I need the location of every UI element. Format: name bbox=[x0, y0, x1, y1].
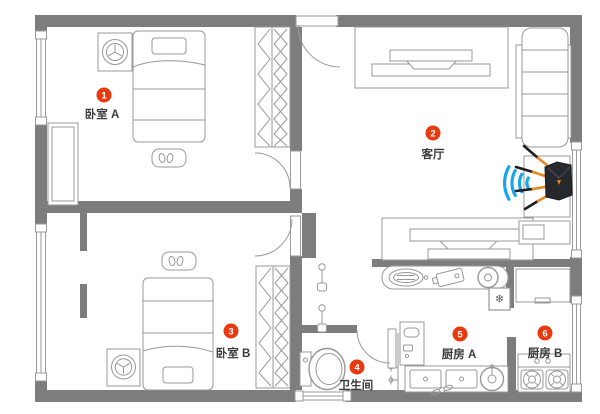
wall-corridor-junction bbox=[290, 189, 302, 201]
window-left-lower bbox=[36, 224, 47, 381]
badge-4-number: 4 bbox=[354, 362, 360, 373]
washing-machine-icon bbox=[98, 33, 132, 71]
badge-6-number: 6 bbox=[542, 328, 547, 339]
wall-left-upper bbox=[35, 15, 47, 33]
side-table bbox=[519, 221, 570, 244]
laundry-counter: ❄ bbox=[382, 266, 510, 310]
room-badge-5: 5 bbox=[453, 327, 468, 342]
snowflake-icon: ❄ bbox=[495, 294, 504, 306]
bedroom-b-furniture bbox=[107, 252, 290, 390]
water-valve-icon-1 bbox=[318, 264, 327, 291]
washing-machine-icon-b bbox=[107, 349, 140, 386]
bathroom-door bbox=[357, 329, 396, 368]
badge-5-number: 5 bbox=[457, 329, 463, 340]
bedroom-b-door bbox=[255, 216, 301, 256]
wall-right-upper bbox=[570, 15, 582, 143]
slippers-icon-a bbox=[152, 149, 186, 167]
window-right-upper bbox=[572, 142, 582, 258]
room-badge-3: 3 bbox=[224, 324, 239, 339]
floor-plan-svg: ❄ bbox=[0, 0, 600, 414]
window-left-upper bbox=[36, 31, 47, 125]
radiator-a bbox=[48, 123, 78, 205]
room-badge-1: 1 bbox=[97, 88, 112, 103]
room-badge-4: 4 bbox=[350, 360, 365, 375]
wall-bedroomB-stub-1 bbox=[80, 213, 87, 251]
tv-cabinet bbox=[355, 27, 508, 88]
dining-table bbox=[382, 218, 533, 260]
wall-top-left bbox=[35, 15, 296, 27]
room-label-kitchen-a: 厨房 A bbox=[442, 347, 477, 361]
tall-cabinet-icon bbox=[400, 322, 424, 365]
kitchen-b-counter bbox=[516, 269, 570, 303]
wall-right-lower bbox=[570, 391, 582, 402]
bedroom-a-door bbox=[255, 151, 301, 189]
bed-b bbox=[143, 278, 213, 390]
badge-2-number: 2 bbox=[430, 128, 435, 139]
living-room-furniture bbox=[355, 27, 571, 260]
sofa bbox=[516, 28, 571, 147]
floor-plan: ❄ bbox=[0, 0, 600, 414]
wall-corridor-upper bbox=[290, 27, 302, 151]
wall-bottom-left bbox=[35, 390, 296, 402]
badge-3-number: 3 bbox=[228, 326, 233, 337]
room-label-bedroom-a: 卧室 A bbox=[85, 107, 120, 121]
wardrobe-a bbox=[255, 27, 290, 147]
freezer-icon: ❄ bbox=[489, 288, 510, 310]
water-valve-icon-2 bbox=[318, 305, 327, 332]
room-badge-2: 2 bbox=[426, 126, 441, 141]
badge-1-number: 1 bbox=[101, 90, 107, 101]
window-right-lower bbox=[572, 296, 582, 392]
room-label-bedroom-b: 卧室 B bbox=[216, 346, 251, 360]
window-bathroom-bottom bbox=[295, 391, 351, 401]
room-label-living-room: 客厅 bbox=[421, 147, 445, 161]
room-label-kitchen-b: 厨房 B bbox=[528, 346, 563, 360]
wall-bedroomB-stub-2 bbox=[80, 284, 87, 318]
room-label-bathroom: 卫生间 bbox=[339, 378, 374, 392]
entry-door bbox=[296, 16, 340, 67]
wall-corridor-stub bbox=[302, 213, 316, 258]
wardrobe-b bbox=[256, 266, 290, 388]
room-badge-6: 6 bbox=[538, 326, 553, 341]
slippers-icon-b bbox=[162, 252, 196, 270]
wall-top-right bbox=[336, 15, 582, 27]
bed-a bbox=[133, 31, 205, 142]
